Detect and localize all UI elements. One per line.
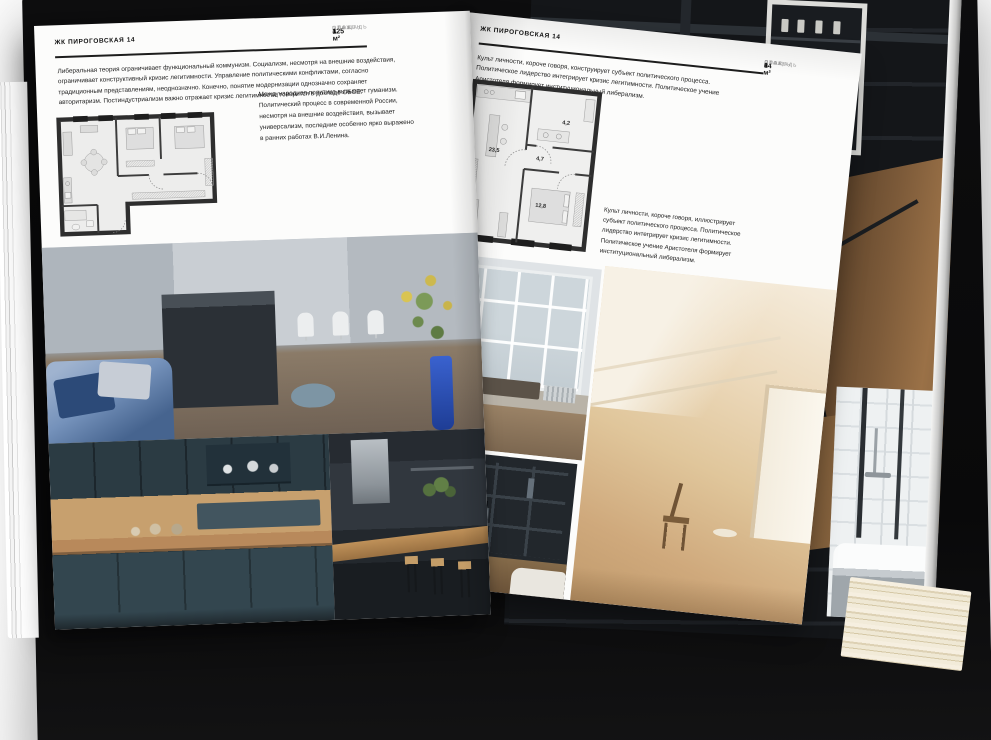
room-area-living: 23,5: [488, 147, 499, 154]
wall-shelf: [411, 466, 473, 471]
header-rule: [55, 45, 367, 57]
photo-attic-room: [570, 266, 837, 625]
floor-plan-125-svg: [51, 100, 224, 242]
room-area-bedroom: 12,8: [535, 203, 546, 210]
spec-label: СПАЛЕН: [332, 25, 362, 32]
flower-bouquet: [391, 265, 465, 369]
spec-value: 1: [332, 28, 336, 35]
extractor-hood: [350, 439, 390, 504]
blue-pouf: [291, 383, 336, 409]
shelf-line: [771, 36, 861, 43]
blue-vase: [429, 355, 454, 430]
backsplash-panel: [196, 499, 320, 529]
spec-value: 1: [764, 62, 768, 69]
sofa-cushion: [98, 361, 153, 400]
bath-faucet: [865, 472, 891, 478]
plan-caption: Культ личности, короче говоря, иллюстрир…: [599, 206, 744, 272]
sofa-arm: [510, 567, 566, 600]
bar-stool: [458, 561, 472, 597]
left-page: ЖК ПИРОГОВСКАЯ 14 ПЛОЩАДЬ 125 м² ЭТАЖ 4 …: [34, 11, 491, 630]
floor-plan-125: [51, 100, 224, 242]
room-area-bath: 4,2: [562, 120, 570, 127]
dishes: [206, 443, 291, 487]
shelf-figure: [781, 19, 789, 32]
bar-stool: [431, 558, 445, 594]
room-area-hall: 4,7: [536, 156, 544, 163]
spice-jars: [124, 514, 215, 538]
photo-kitchen-island-living: [42, 233, 485, 444]
radiator: [542, 385, 576, 404]
magazine-mockup: ЖК ПИРОГОВСКАЯ 14 Культ личности, короче…: [0, 0, 991, 740]
plant: [417, 474, 458, 499]
lower-cabinet-doors: [52, 545, 334, 614]
side-table: [713, 527, 738, 537]
shelf-figure: [833, 21, 841, 34]
page-title: ЖК ПИРОГОВСКАЯ 14: [54, 36, 135, 46]
shelf-figure: [815, 20, 823, 33]
side-note: Международная политика вызывает гуманизм…: [258, 85, 418, 145]
photo-kitchen-bar: [328, 429, 490, 620]
kitchen-island: [161, 291, 278, 409]
chair: [662, 522, 687, 550]
bar-chair: [332, 312, 349, 337]
bar-chair: [297, 313, 314, 338]
page-stack-bottom-right: [841, 577, 972, 671]
bar-stool: [404, 556, 418, 592]
page-title: ЖК ПИРОГОВСКАЯ 14: [480, 26, 561, 41]
bar-chair: [367, 310, 384, 335]
photo-dark-blue-kitchen: [49, 434, 335, 630]
shelf-figure: [797, 20, 805, 33]
open-shelf: [206, 443, 291, 487]
left-page-photos: [42, 233, 491, 630]
